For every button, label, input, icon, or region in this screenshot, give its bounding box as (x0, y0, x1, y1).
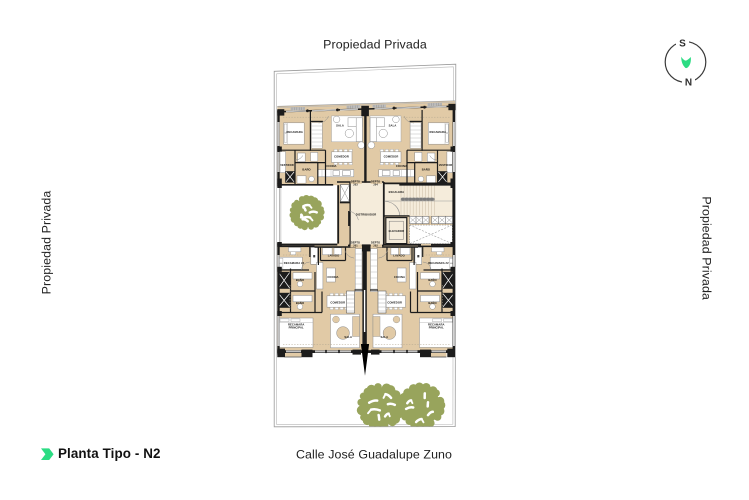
svg-text:SALA: SALA (380, 335, 388, 339)
svg-text:RECAMARA: RECAMARA (286, 130, 302, 134)
svg-text:COCINA: COCINA (396, 164, 407, 168)
svg-text:Planta Tipo - N2: Planta Tipo - N2 (58, 446, 161, 461)
svg-text:202: 202 (373, 245, 378, 248)
svg-text:RECAMARA: RECAMARA (430, 130, 446, 134)
svg-text:COCINA: COCINA (325, 164, 336, 168)
svg-text:203: 203 (353, 183, 358, 186)
svg-text:SALA: SALA (389, 124, 397, 128)
svg-text:SALA: SALA (344, 335, 352, 339)
svg-text:COMEDOR: COMEDOR (334, 155, 349, 159)
svg-text:COMEDOR: COMEDOR (384, 155, 399, 159)
svg-text:VESTIDOR: VESTIDOR (439, 164, 453, 167)
svg-text:COCINA: COCINA (327, 275, 338, 279)
svg-text:COMEDOR: COMEDOR (387, 300, 402, 304)
svg-text:ELEVADOR: ELEVADOR (389, 229, 405, 233)
svg-text:204: 204 (373, 183, 378, 186)
svg-text:VESTIDOR: VESTIDOR (280, 164, 294, 167)
svg-text:S: S (679, 39, 686, 50)
svg-text:Propiedad Privada: Propiedad Privada (323, 37, 427, 51)
svg-text:RECAMARA #2: RECAMARA #2 (428, 261, 449, 265)
svg-text:COMEDOR: COMEDOR (330, 300, 345, 304)
svg-text:Calle José Guadalupe Zuno: Calle José Guadalupe Zuno (296, 448, 452, 462)
svg-text:COCINA: COCINA (394, 275, 405, 279)
svg-text:LAVADO: LAVADO (393, 254, 405, 258)
svg-text:PRINCIPAL: PRINCIPAL (289, 326, 304, 330)
svg-text:SALA: SALA (336, 124, 344, 128)
svg-text:N: N (685, 78, 692, 89)
svg-text:LAVADO: LAVADO (328, 254, 340, 258)
svg-text:Propiedad Privada: Propiedad Privada (40, 191, 54, 295)
svg-text:201: 201 (353, 245, 358, 248)
svg-text:ESCALERA: ESCALERA (389, 190, 405, 194)
svg-text:Propiedad Privada: Propiedad Privada (699, 196, 713, 300)
svg-text:RECAMARA #2: RECAMARA #2 (284, 261, 305, 265)
svg-text:PRINCIPAL: PRINCIPAL (429, 326, 444, 330)
svg-text:DISTRIBUIDOR: DISTRIBUIDOR (356, 213, 377, 217)
